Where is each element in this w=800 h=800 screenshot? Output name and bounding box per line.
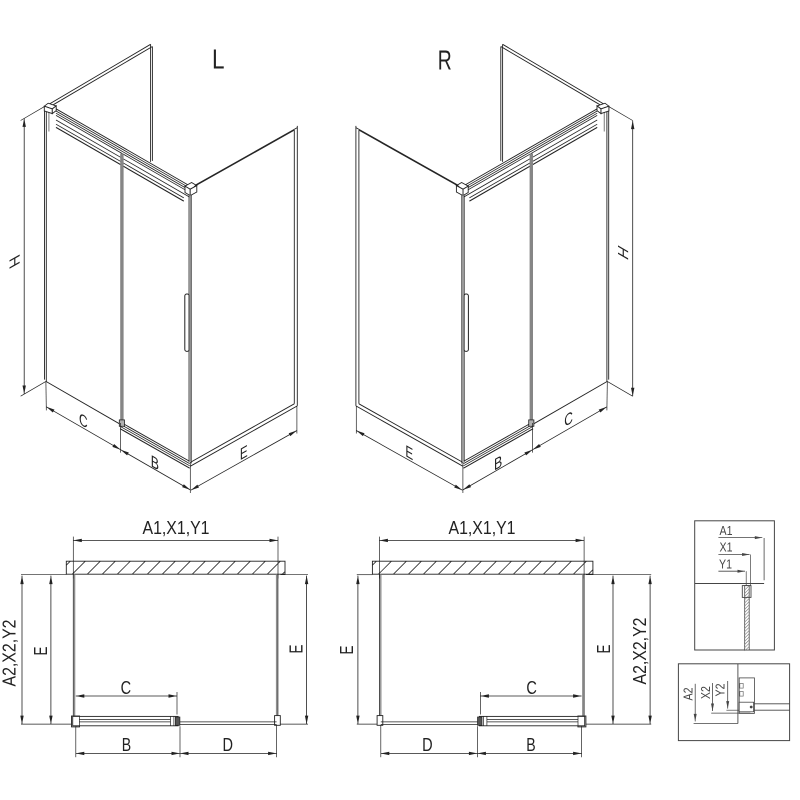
svg-text:E: E <box>31 647 51 656</box>
svg-text:A1,X1,Y1: A1,X1,Y1 <box>449 518 516 538</box>
svg-text:L: L <box>212 44 225 75</box>
svg-text:R: R <box>438 45 452 76</box>
svg-text:X2: X2 <box>698 686 713 699</box>
svg-text:A2,X2,Y2: A2,X2,Y2 <box>0 620 20 687</box>
svg-text:C: C <box>526 678 537 698</box>
svg-text:Y2: Y2 <box>713 684 728 697</box>
svg-text:E: E <box>337 646 357 655</box>
svg-text:Y1: Y1 <box>719 556 732 571</box>
svg-text:A2,X2,Y2: A2,X2,Y2 <box>630 618 650 685</box>
svg-text:A1: A1 <box>720 523 733 538</box>
svg-text:C: C <box>121 678 132 698</box>
svg-text:A1,X1,Y1: A1,X1,Y1 <box>143 518 210 538</box>
svg-text:D: D <box>422 735 433 755</box>
svg-text:X1: X1 <box>720 540 733 555</box>
svg-text:D: D <box>223 735 234 755</box>
svg-text:A2: A2 <box>680 688 695 701</box>
svg-text:E: E <box>594 645 614 654</box>
svg-text:B: B <box>122 735 131 755</box>
svg-text:E: E <box>286 645 306 654</box>
svg-text:B: B <box>526 735 535 755</box>
